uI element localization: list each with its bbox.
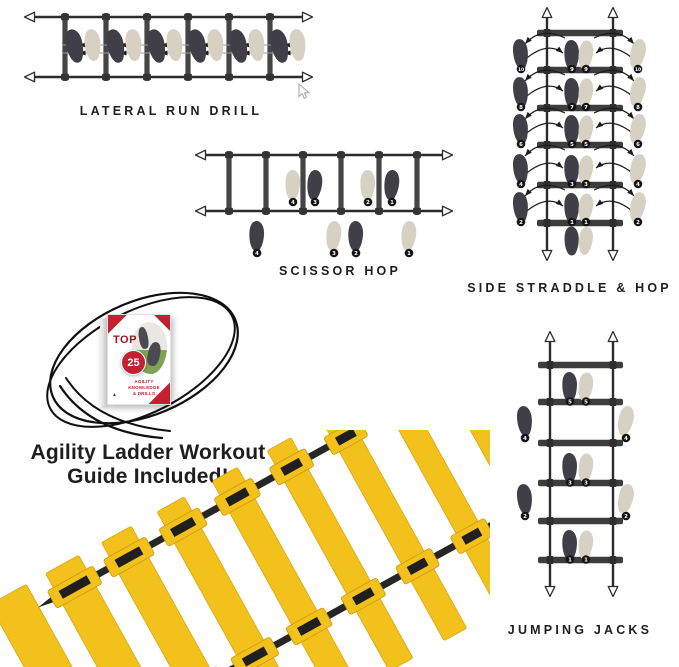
step-number: 3 — [570, 182, 574, 188]
rung-cap — [337, 208, 345, 214]
booklet-subtitle: AGILITY KNOWLEDGE & DRILLS — [120, 379, 168, 397]
step-number: 5 — [568, 399, 572, 405]
step-number: 4 — [519, 182, 523, 188]
footprint-light — [578, 227, 594, 256]
rung-cap — [375, 152, 383, 158]
rung-cap — [225, 74, 233, 80]
rung-cap — [610, 398, 617, 406]
jumping-jacks-diagram: 5533114422 — [490, 320, 679, 610]
arrowhead-icon — [556, 199, 565, 208]
rung-cap — [375, 208, 383, 214]
product-image: LATERAL RUN DRILL 43214321 SCISSOR HOP 9… — [0, 0, 679, 667]
step-number: 2 — [366, 200, 370, 206]
open-arrowhead-icon — [443, 150, 453, 160]
footprint-light — [246, 28, 267, 62]
ladder-rung — [376, 151, 381, 215]
footprint-dark — [515, 405, 534, 437]
open-arrowhead-icon — [608, 587, 618, 597]
arrowhead-icon — [556, 161, 565, 170]
footprint-light — [205, 28, 226, 62]
footprint-light — [326, 221, 342, 251]
footprint-light — [360, 170, 376, 200]
open-arrowhead-icon — [542, 251, 552, 261]
rung-cap — [544, 219, 551, 227]
ladder-rung — [414, 151, 419, 215]
workout-guide-booklet: TOP 25 AGILITY KNOWLEDGE & DRILLS ▲ — [100, 314, 176, 410]
footprint-light — [82, 28, 103, 62]
footprint-dark — [348, 221, 364, 251]
athlete-figure — [137, 326, 150, 349]
step-number: 1 — [390, 200, 394, 206]
step-number: 9 — [570, 67, 574, 73]
step-number: 3 — [584, 182, 588, 188]
rung-cap — [337, 152, 345, 158]
open-arrowhead-icon — [608, 251, 618, 261]
arrowhead-icon — [594, 84, 603, 93]
booklet-top-label: TOP — [113, 334, 137, 346]
step-number: 10 — [635, 67, 641, 73]
arrowhead-icon — [594, 161, 603, 170]
step-number: 4 — [636, 182, 640, 188]
scissor-hop-caption: SCISSOR HOP — [240, 264, 440, 278]
rung-cap — [225, 152, 233, 158]
open-arrowhead-icon — [545, 587, 555, 597]
ladder-rung — [263, 151, 268, 215]
rung-cap — [102, 14, 110, 20]
rung-cap — [266, 74, 274, 80]
rung-cap — [610, 219, 617, 227]
rung-cap — [547, 361, 554, 369]
booklet-cover: TOP 25 AGILITY KNOWLEDGE & DRILLS ▲ — [107, 314, 171, 405]
rung-cap — [610, 517, 617, 525]
step-number: 4 — [624, 436, 628, 442]
step-number: 10 — [518, 67, 524, 73]
rung-cap — [547, 398, 554, 406]
rung-cap — [547, 517, 554, 525]
step-number: 2 — [354, 251, 358, 257]
arrowhead-icon — [594, 121, 603, 130]
side-straddle-diagram: 9910107788556633441122 — [490, 0, 679, 272]
arrowhead-icon — [556, 46, 565, 55]
step-number: 3 — [332, 251, 336, 257]
agility-ladder-photo — [0, 430, 490, 667]
step-number: 3 — [584, 480, 588, 486]
arrowhead-icon — [556, 84, 565, 93]
rung-cap — [413, 208, 421, 214]
rung-cap — [610, 361, 617, 369]
rung-cap — [262, 152, 270, 158]
step-number: 1 — [584, 220, 588, 226]
footprint-light — [123, 28, 144, 62]
step-number: 7 — [584, 105, 588, 111]
step-number: 4 — [523, 436, 527, 442]
step-number: 2 — [636, 220, 640, 226]
arrowhead-icon — [556, 121, 565, 130]
step-number: 1 — [570, 220, 574, 226]
step-number: 6 — [519, 142, 523, 148]
jumping-jacks-caption: JUMPING JACKS — [495, 623, 665, 637]
lateral-run-caption: LATERAL RUN DRILL — [40, 104, 302, 118]
side-straddle-caption: SIDE STRADDLE & HOP — [460, 281, 679, 295]
step-number: 8 — [636, 105, 640, 111]
step-number: 5 — [570, 142, 574, 148]
footprint-light — [287, 28, 308, 62]
booklet-number: 25 — [127, 357, 139, 369]
open-arrowhead-icon — [608, 8, 618, 18]
footprint-light — [285, 170, 301, 200]
open-arrowhead-icon — [542, 8, 552, 18]
step-number: 3 — [313, 200, 317, 206]
step-number: 3 — [568, 480, 572, 486]
ladder-photo-group — [0, 430, 490, 667]
ladder-rung — [300, 151, 305, 215]
open-arrowhead-icon — [608, 332, 618, 342]
open-arrowhead-icon — [25, 12, 35, 22]
footprint-dark — [307, 170, 323, 200]
rung-cap — [102, 74, 110, 80]
step-number: 2 — [523, 514, 527, 520]
open-arrowhead-icon — [25, 72, 35, 82]
step-number: 5 — [584, 142, 588, 148]
step-number: 4 — [291, 200, 295, 206]
open-arrowhead-icon — [303, 12, 313, 22]
open-arrowhead-icon — [196, 150, 206, 160]
scissor-hop-diagram: 43214321 — [186, 144, 468, 264]
rung-cap — [184, 14, 192, 20]
rung-cap — [225, 14, 233, 20]
footprint-light — [401, 221, 417, 251]
rung-cap — [547, 479, 554, 487]
footprint-light — [616, 483, 635, 515]
rung-cap — [266, 14, 274, 20]
rung-cap — [547, 556, 554, 564]
footprint-dark — [384, 170, 400, 200]
rung-cap — [610, 556, 617, 564]
step-number: 9 — [584, 67, 588, 73]
footprint-light — [164, 28, 185, 62]
footprint-dark — [249, 221, 265, 251]
footprint-dark — [564, 226, 580, 256]
rung-cap — [547, 439, 554, 447]
rung-cap — [299, 152, 307, 158]
ladder-rung — [226, 151, 231, 215]
rung-cap — [262, 208, 270, 214]
rung-cap — [184, 74, 192, 80]
rung-cap — [299, 208, 307, 214]
ladder-rung — [338, 151, 343, 215]
rung-cap — [143, 14, 151, 20]
step-number: 1 — [568, 557, 572, 563]
rung-cap — [61, 14, 69, 20]
mouse-cursor — [297, 83, 311, 101]
top-25-circle: 25 — [121, 350, 146, 375]
step-number: 2 — [519, 220, 523, 226]
footprint-dark — [515, 483, 534, 515]
rung-cap — [413, 152, 421, 158]
step-number: 1 — [584, 557, 588, 563]
lateral-run-drill-diagram — [8, 6, 328, 104]
rung-cap — [610, 439, 617, 447]
booklet-logo: ▲ — [112, 393, 117, 398]
step-number: 4 — [255, 251, 259, 257]
open-arrowhead-icon — [545, 332, 555, 342]
open-arrowhead-icon — [303, 72, 313, 82]
cursor-arrow — [299, 84, 309, 98]
rung-cap — [61, 74, 69, 80]
open-arrowhead-icon — [196, 206, 206, 216]
open-arrowhead-icon — [443, 206, 453, 216]
step-number: 6 — [636, 142, 640, 148]
footprint-light — [616, 405, 635, 437]
rung-cap — [225, 208, 233, 214]
step-number: 1 — [407, 251, 411, 257]
step-number: 7 — [570, 105, 574, 111]
rung-cap — [610, 479, 617, 487]
rung-cap — [143, 74, 151, 80]
arrowhead-icon — [594, 46, 603, 55]
step-number: 5 — [584, 399, 588, 405]
step-number: 2 — [624, 514, 628, 520]
step-number: 8 — [519, 105, 523, 111]
arrowhead-icon — [594, 199, 603, 208]
